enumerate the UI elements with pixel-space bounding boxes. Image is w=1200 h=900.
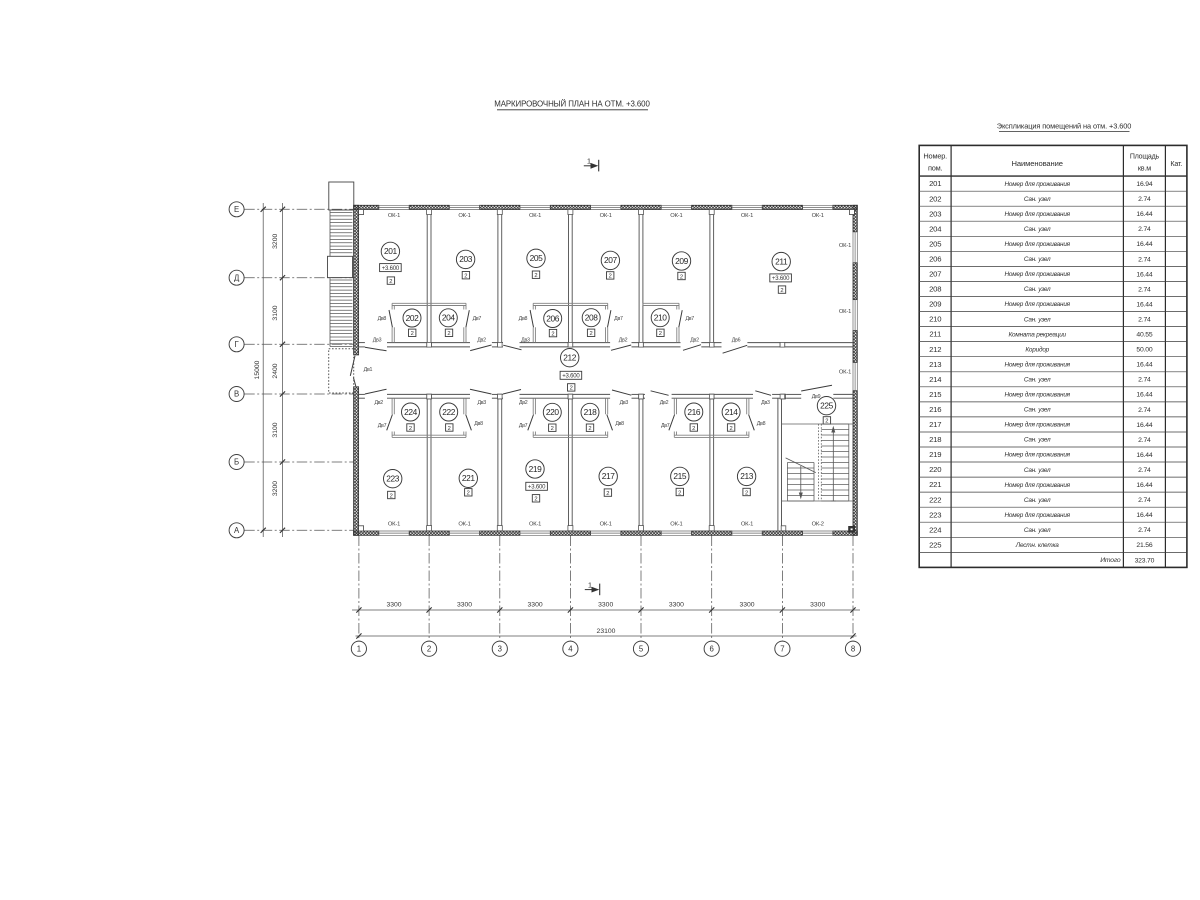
svg-text:2: 2: [551, 426, 554, 432]
svg-text:219: 219: [529, 464, 543, 474]
svg-text:217: 217: [929, 420, 941, 429]
svg-text:Дв7: Дв7: [614, 316, 623, 322]
svg-text:Сан. узел: Сан. узел: [1024, 497, 1051, 504]
svg-text:2.74: 2.74: [1138, 377, 1151, 384]
svg-text:Дв9: Дв9: [812, 394, 821, 400]
svg-text:2.74: 2.74: [1138, 407, 1151, 414]
svg-text:323.70: 323.70: [1135, 557, 1155, 564]
svg-text:21.56: 21.56: [1136, 542, 1152, 549]
svg-text:кв.м: кв.м: [1138, 164, 1151, 173]
svg-text:16.44: 16.44: [1136, 512, 1152, 519]
svg-text:214: 214: [929, 375, 942, 384]
svg-text:16.44: 16.44: [1136, 301, 1152, 308]
svg-text:Е: Е: [234, 205, 239, 214]
svg-text:Сан. узел: Сан. узел: [1024, 527, 1051, 534]
svg-text:205: 205: [929, 239, 941, 248]
svg-text:2.74: 2.74: [1138, 196, 1151, 203]
svg-text:2: 2: [692, 426, 695, 432]
svg-text:216: 216: [687, 407, 701, 417]
svg-text:221: 221: [462, 473, 476, 483]
svg-text:218: 218: [584, 407, 598, 417]
svg-text:3200: 3200: [272, 481, 279, 496]
svg-text:16.44: 16.44: [1136, 241, 1152, 248]
svg-text:212: 212: [563, 353, 577, 363]
svg-text:ОК-2: ОК-2: [812, 521, 824, 527]
svg-text:Дв3: Дв3: [521, 337, 530, 343]
svg-text:2: 2: [390, 493, 393, 499]
svg-text:204: 204: [929, 224, 942, 233]
svg-text:2: 2: [570, 386, 573, 392]
svg-text:2.74: 2.74: [1138, 527, 1151, 534]
svg-text:16.44: 16.44: [1136, 392, 1152, 399]
svg-text:215: 215: [673, 471, 687, 481]
svg-text:Дв7: Дв7: [378, 423, 387, 429]
svg-text:2: 2: [534, 273, 537, 279]
svg-text:пом.: пом.: [928, 164, 943, 173]
svg-text:Номер для проживания: Номер для проживания: [1004, 270, 1070, 278]
svg-text:2.74: 2.74: [1138, 286, 1151, 293]
svg-text:А: А: [234, 526, 240, 535]
svg-text:50.00: 50.00: [1136, 347, 1152, 354]
svg-text:Дв8: Дв8: [519, 316, 528, 322]
svg-text:223: 223: [386, 474, 400, 484]
svg-text:214: 214: [725, 407, 739, 417]
svg-text:2: 2: [606, 491, 609, 497]
svg-text:+3.600: +3.600: [562, 374, 580, 380]
svg-text:209: 209: [929, 300, 941, 309]
svg-text:2.74: 2.74: [1138, 467, 1151, 474]
svg-text:Сан. узел: Сан. узел: [1024, 196, 1051, 203]
svg-text:206: 206: [929, 255, 941, 264]
svg-text:202: 202: [406, 313, 420, 323]
svg-text:ОК-1: ОК-1: [388, 213, 400, 219]
svg-text:ОК-1: ОК-1: [812, 213, 824, 219]
svg-text:ОК-1: ОК-1: [388, 521, 400, 527]
svg-text:218: 218: [929, 435, 941, 444]
svg-text:2.74: 2.74: [1138, 317, 1151, 324]
svg-text:Сан. узел: Сан. узел: [1024, 286, 1051, 293]
svg-text:Номер.: Номер.: [923, 152, 947, 161]
svg-text:3: 3: [498, 644, 502, 653]
svg-text:Комната рекреации: Комната рекреации: [1008, 331, 1066, 338]
svg-text:203: 203: [929, 209, 941, 218]
svg-text:202: 202: [929, 194, 941, 203]
svg-text:223: 223: [929, 510, 941, 519]
svg-text:Площадь: Площадь: [1130, 154, 1160, 161]
svg-text:Коридор: Коридор: [1025, 345, 1049, 353]
svg-text:+3.600: +3.600: [382, 266, 400, 272]
svg-text:23100: 23100: [597, 628, 616, 635]
svg-text:Номер для проживания: Номер для проживания: [1004, 481, 1070, 489]
svg-text:208: 208: [585, 313, 599, 323]
svg-text:Номер для проживания: Номер для проживания: [1004, 360, 1070, 368]
svg-text:204: 204: [442, 313, 456, 323]
svg-text:ОК-1: ОК-1: [741, 521, 753, 527]
svg-text:220: 220: [546, 407, 560, 417]
svg-text:2: 2: [588, 426, 591, 432]
svg-text:Сан. узел: Сан. узел: [1024, 256, 1051, 263]
svg-text:2.74: 2.74: [1138, 256, 1151, 263]
svg-text:3300: 3300: [528, 602, 543, 609]
svg-text:ОК-1: ОК-1: [529, 213, 541, 219]
svg-text:Дв7: Дв7: [685, 316, 694, 322]
svg-text:16.44: 16.44: [1136, 271, 1152, 278]
svg-text:209: 209: [675, 256, 689, 266]
svg-text:222: 222: [442, 407, 456, 417]
svg-text:8: 8: [851, 644, 855, 653]
svg-text:220: 220: [929, 465, 941, 474]
svg-text:208: 208: [929, 285, 941, 294]
svg-text:2: 2: [534, 497, 537, 503]
svg-text:207: 207: [604, 255, 618, 265]
svg-text:Сан. узел: Сан. узел: [1024, 407, 1051, 414]
svg-text:3300: 3300: [457, 602, 472, 609]
svg-text:16.44: 16.44: [1136, 452, 1152, 459]
svg-text:224: 224: [929, 525, 942, 534]
svg-text:2.74: 2.74: [1138, 226, 1151, 233]
svg-text:2: 2: [745, 490, 748, 496]
svg-text:+3.600: +3.600: [528, 485, 546, 491]
svg-text:3100: 3100: [272, 422, 279, 437]
svg-text:Дв8: Дв8: [378, 316, 387, 322]
svg-text:2: 2: [389, 279, 392, 285]
svg-text:Дв8: Дв8: [615, 421, 624, 427]
svg-text:16.44: 16.44: [1136, 211, 1152, 218]
svg-text:ОК-1: ОК-1: [458, 213, 470, 219]
svg-text:2: 2: [659, 331, 662, 337]
svg-text:Номер для проживания: Номер для проживания: [1004, 391, 1070, 399]
svg-text:3300: 3300: [598, 602, 613, 609]
svg-text:7: 7: [780, 644, 784, 653]
svg-text:Номер для проживания: Номер для проживания: [1004, 180, 1070, 188]
svg-text:213: 213: [740, 471, 754, 481]
svg-text:3300: 3300: [739, 602, 754, 609]
svg-text:Дв3: Дв3: [761, 400, 770, 406]
svg-text:205: 205: [530, 253, 544, 263]
svg-text:217: 217: [602, 471, 616, 481]
svg-text:5: 5: [639, 644, 644, 653]
svg-text:ОК-1: ОК-1: [839, 369, 851, 375]
svg-text:213: 213: [929, 360, 941, 369]
svg-text:Сан. узел: Сан. узел: [1024, 437, 1051, 444]
svg-text:Дв7: Дв7: [519, 423, 528, 429]
svg-text:16.44: 16.44: [1136, 362, 1152, 369]
svg-text:Экспликация помещений на отм.: Экспликация помещений на отм. +3.600: [997, 122, 1131, 131]
svg-text:211: 211: [775, 256, 788, 266]
svg-text:Дв8: Дв8: [757, 421, 766, 427]
svg-text:Номер для проживания: Номер для проживания: [1004, 240, 1070, 248]
svg-text:Номер для проживания: Номер для проживания: [1004, 210, 1070, 218]
svg-text:3300: 3300: [669, 602, 684, 609]
svg-text:Дв2: Дв2: [477, 337, 486, 343]
svg-text:2: 2: [609, 274, 612, 280]
svg-text:ОК-1: ОК-1: [670, 213, 682, 219]
svg-text:16.44: 16.44: [1136, 422, 1152, 429]
svg-text:1: 1: [588, 580, 592, 589]
svg-text:3100: 3100: [272, 305, 279, 320]
svg-text:ОК-1: ОК-1: [839, 309, 851, 315]
svg-text:ОК-1: ОК-1: [529, 521, 541, 527]
svg-text:225: 225: [929, 540, 941, 549]
svg-text:Д: Д: [234, 273, 240, 282]
svg-text:210: 210: [929, 315, 941, 324]
svg-text:Номер для проживания: Номер для проживания: [1004, 421, 1070, 429]
svg-text:ОК-1: ОК-1: [600, 213, 612, 219]
svg-text:210: 210: [654, 313, 668, 323]
svg-text:207: 207: [929, 270, 941, 279]
svg-text:Дв8: Дв8: [474, 421, 483, 427]
svg-text:Сан. узел: Сан. узел: [1024, 377, 1051, 384]
svg-text:1: 1: [357, 644, 361, 653]
svg-text:2: 2: [464, 274, 467, 280]
svg-text:ОК-1: ОК-1: [600, 521, 612, 527]
svg-text:Дв2: Дв2: [519, 400, 528, 406]
svg-text:201: 201: [384, 246, 398, 256]
svg-text:2: 2: [729, 426, 732, 432]
svg-text:201: 201: [929, 179, 941, 188]
svg-text:2: 2: [447, 331, 450, 337]
svg-text:2.74: 2.74: [1138, 437, 1151, 444]
svg-text:2: 2: [680, 274, 683, 280]
svg-text:216: 216: [929, 405, 941, 414]
svg-text:Номер для проживания: Номер для проживания: [1004, 300, 1070, 308]
svg-text:2: 2: [551, 331, 554, 337]
svg-text:222: 222: [929, 495, 941, 504]
svg-text:ОК-1: ОК-1: [458, 521, 470, 527]
svg-text:224: 224: [404, 407, 418, 417]
svg-text:Наименование: Наименование: [1011, 159, 1062, 168]
svg-text:Лестн. клетка: Лестн. клетка: [1015, 542, 1059, 549]
svg-text:Дв7: Дв7: [473, 316, 482, 322]
svg-text:4: 4: [568, 644, 573, 653]
svg-text:215: 215: [929, 390, 941, 399]
svg-text:Дв7: Дв7: [661, 423, 670, 429]
svg-text:1: 1: [587, 157, 591, 166]
svg-text:Дв3: Дв3: [477, 400, 486, 406]
svg-text:15000: 15000: [254, 360, 261, 379]
svg-text:+3.600: +3.600: [772, 276, 790, 282]
svg-text:2: 2: [467, 491, 470, 497]
svg-text:Дв1: Дв1: [364, 367, 373, 373]
svg-text:Номер для проживания: Номер для проживания: [1004, 451, 1070, 459]
svg-text:Дв3: Дв3: [620, 400, 629, 406]
svg-text:Номер для проживания: Номер для проживания: [1004, 511, 1070, 519]
svg-text:2.74: 2.74: [1138, 497, 1151, 504]
svg-text:В: В: [234, 390, 239, 399]
svg-text:3300: 3300: [386, 602, 401, 609]
svg-text:МАРКИРОВОЧНЫЙ ПЛАН НА ОТМ. +3.: МАРКИРОВОЧНЫЙ ПЛАН НА ОТМ. +3.600: [494, 100, 650, 109]
svg-text:212: 212: [929, 345, 941, 354]
svg-text:ОК-1: ОК-1: [741, 213, 753, 219]
svg-text:219: 219: [929, 450, 941, 459]
svg-text:Сан. узел: Сан. узел: [1024, 226, 1051, 233]
svg-text:2: 2: [409, 426, 412, 432]
svg-text:2: 2: [448, 426, 451, 432]
svg-text:Итого: Итого: [1100, 557, 1121, 564]
svg-text:2: 2: [780, 288, 783, 294]
svg-text:Дв2: Дв2: [619, 337, 628, 343]
svg-text:ОК-1: ОК-1: [839, 243, 851, 249]
svg-text:2: 2: [589, 331, 592, 337]
svg-text:Кат.: Кат.: [1170, 159, 1182, 168]
svg-text:2400: 2400: [272, 363, 279, 378]
svg-text:Дв2: Дв2: [374, 400, 383, 406]
svg-text:Б: Б: [234, 458, 239, 467]
svg-text:211: 211: [929, 330, 941, 339]
svg-text:Дв6: Дв6: [732, 337, 741, 343]
svg-text:Дв3: Дв3: [373, 337, 382, 343]
svg-text:2: 2: [427, 644, 431, 653]
svg-text:3200: 3200: [272, 234, 279, 249]
svg-text:Дв2: Дв2: [690, 337, 699, 343]
svg-text:3300: 3300: [810, 602, 825, 609]
svg-text:2: 2: [411, 331, 414, 337]
svg-text:Сан. узел: Сан. узел: [1024, 316, 1051, 323]
svg-text:206: 206: [546, 313, 560, 323]
svg-text:225: 225: [820, 401, 834, 411]
svg-text:Сан. узел: Сан. узел: [1024, 467, 1051, 474]
svg-text:203: 203: [459, 254, 473, 264]
svg-text:40.55: 40.55: [1136, 332, 1152, 339]
svg-text:2: 2: [678, 490, 681, 496]
svg-text:16.94: 16.94: [1136, 181, 1152, 188]
svg-text:ОК-1: ОК-1: [670, 521, 682, 527]
svg-text:Дв2: Дв2: [660, 400, 669, 406]
svg-text:221: 221: [929, 480, 941, 489]
svg-text:16.44: 16.44: [1136, 482, 1152, 489]
svg-text:6: 6: [710, 644, 714, 653]
